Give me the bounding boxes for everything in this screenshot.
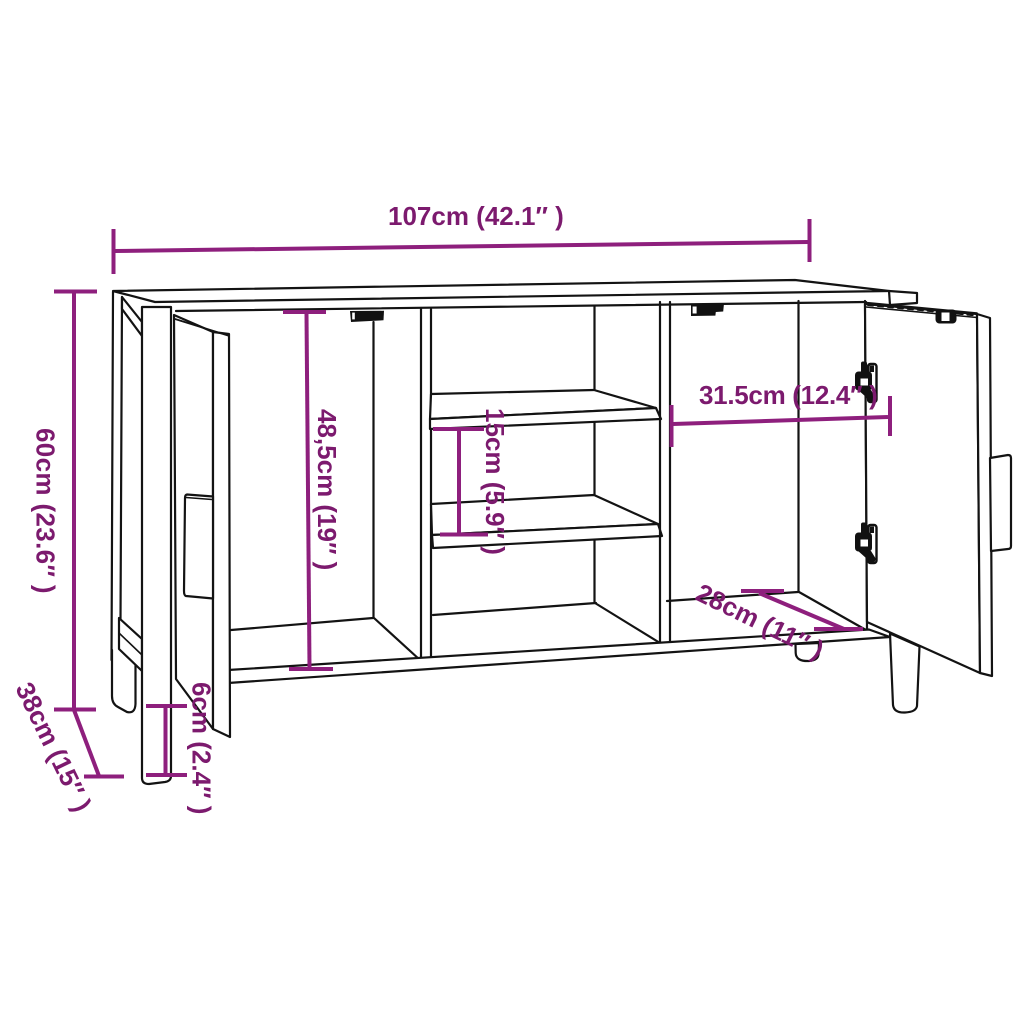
- svg-text:107cm (42.1″ ): 107cm (42.1″ ): [388, 201, 564, 231]
- svg-text:15cm (5.9″ ): 15cm (5.9″ ): [480, 408, 510, 555]
- svg-text:6cm (2.4″ ): 6cm (2.4″ ): [187, 682, 217, 814]
- svg-text:60cm (23.6″ ): 60cm (23.6″ ): [31, 428, 61, 594]
- svg-text:31.5cm (12.4″ ): 31.5cm (12.4″ ): [699, 380, 878, 410]
- svg-text:48,5cm (19″ ): 48,5cm (19″ ): [312, 409, 342, 570]
